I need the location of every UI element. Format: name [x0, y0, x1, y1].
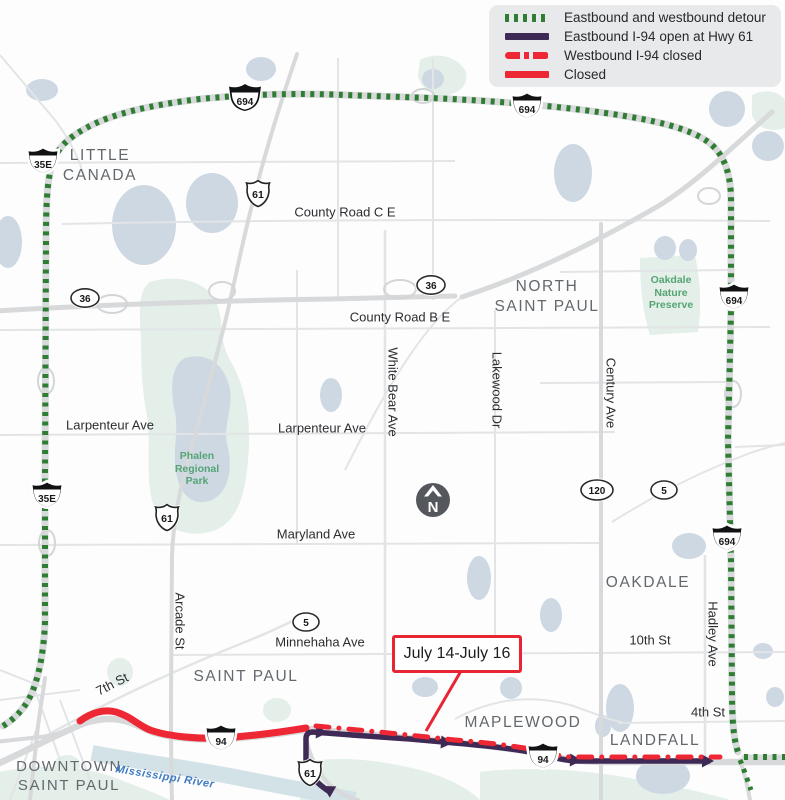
street-label-maryland-ave: Maryland Ave: [277, 527, 356, 542]
shield-i694-east-upper: 694: [716, 281, 752, 311]
lake: [500, 677, 522, 699]
street-label-4th-st: 4th St: [691, 705, 725, 720]
shield-number: 694: [719, 537, 736, 548]
lake: [412, 677, 438, 697]
shield-number: 694: [519, 105, 536, 116]
road: [560, 270, 730, 272]
shield-number: 5: [303, 618, 309, 629]
legend: Eastbound and westbound detour Eastbound…: [489, 5, 781, 87]
street-label-minnehaha-ave: Minnehaha Ave: [275, 635, 364, 650]
park-label-oakdale-preserve: Oakdale Nature Preserve: [649, 274, 693, 312]
shield-number: 61: [252, 189, 264, 201]
shield-number: 35E: [38, 494, 56, 505]
legend-item-eastbound-open: Eastbound I-94 open at Hwy 61: [505, 29, 781, 45]
city-line: DOWNTOWN: [16, 757, 122, 776]
shield-mn5-east: 5: [649, 479, 679, 501]
lake: [554, 144, 592, 202]
city-line: NORTH: [494, 277, 599, 297]
shield-number: 36: [425, 281, 437, 292]
closure-date-callout: July 14-July 16: [392, 635, 522, 673]
lake: [112, 185, 176, 265]
city-line: LANDFALL: [610, 731, 700, 751]
shield-mn5-west: 5: [291, 611, 321, 633]
shield-i694-north: 694: [509, 90, 545, 120]
lake: [654, 236, 676, 260]
city-line: OAKDALE: [606, 573, 690, 593]
legend-item-westbound-closed: Westbound I-94 closed: [505, 48, 781, 64]
lake: [752, 131, 784, 161]
city-label-oakdale: OAKDALE: [606, 573, 690, 593]
lake: [766, 687, 784, 707]
shield-mn120: 120: [579, 478, 615, 502]
legend-swatch-closed: [505, 71, 549, 78]
park-label-phalen: Phalen Regional Park: [175, 450, 219, 488]
road: [612, 443, 785, 522]
shield-i35e-north: 35E: [25, 145, 61, 175]
city-label-downtown-saint-paul: DOWNTOWN SAINT PAUL: [16, 757, 122, 795]
shield-number: 94: [215, 737, 227, 748]
legend-label: Eastbound I-94 open at Hwy 61: [564, 29, 753, 44]
city-label-maplewood: MAPLEWOOD: [465, 713, 582, 733]
shield-mn36-east: 36: [415, 274, 447, 296]
street-label-century-ave: Century Ave: [604, 358, 619, 429]
shield-i35e-south: 35E: [29, 479, 65, 509]
lake: [679, 239, 697, 261]
north-indicator: N: [416, 483, 450, 517]
shield-number: 36: [79, 294, 91, 305]
legend-label: Closed: [564, 67, 606, 82]
city-label-landfall: LANDFALL: [610, 731, 700, 751]
park-line: Regional: [175, 463, 219, 476]
shield-us61-mid: 61: [153, 503, 181, 532]
legend-item-detour: Eastbound and westbound detour: [505, 10, 781, 26]
shield-number: 35E: [34, 160, 52, 171]
shield-number: 61: [161, 513, 173, 525]
lake: [753, 643, 773, 659]
city-line: SAINT PAUL: [16, 776, 122, 795]
street-label-larpenteur-east: Larpenteur Ave: [278, 421, 366, 436]
city-label-saint-paul: SAINT PAUL: [193, 667, 298, 687]
road: [540, 382, 730, 383]
street-label-lakewood-dr: Lakewood Dr: [490, 352, 505, 429]
park-line: Preserve: [649, 299, 693, 312]
legend-swatch-detour: [505, 14, 549, 22]
street-label-county-road-b: County Road B E: [350, 310, 450, 325]
street-label-10th-st: 10th St: [629, 633, 670, 648]
shield-i94-east: 94: [525, 740, 561, 770]
shield-number: 694: [237, 97, 254, 108]
shield-i694-northwest: 694: [227, 82, 263, 112]
shield-number: 94: [537, 755, 549, 766]
city-line: CANADA: [63, 166, 137, 186]
street-label-larpenteur-west: Larpenteur Ave: [66, 418, 154, 433]
road: [618, 721, 785, 723]
shield-mn36-west: 36: [69, 287, 101, 309]
city-line: SAINT PAUL: [193, 667, 298, 687]
city-label-north-saint-paul: NORTH SAINT PAUL: [494, 277, 599, 317]
legend-item-closed: Closed: [505, 67, 781, 83]
park-line: Oakdale: [649, 274, 693, 287]
shield-us61-south: 61: [296, 758, 324, 787]
detour-map: N LITTLE CANADA NORTH SAINT PAUL OAKDALE…: [0, 0, 785, 800]
lake: [672, 533, 706, 559]
road: [0, 543, 600, 545]
street-label-hadley-ave: Hadley Ave: [706, 601, 721, 667]
park-area: [480, 769, 730, 800]
lake: [246, 57, 276, 81]
city-line: LITTLE: [63, 146, 137, 166]
city-line: SAINT PAUL: [494, 297, 599, 317]
street-label-arcade-st: Arcade St: [173, 592, 188, 649]
shield-i694-east-lower: 694: [709, 522, 745, 552]
lake: [0, 216, 22, 268]
lake: [540, 598, 562, 632]
shield-number: 61: [304, 768, 316, 780]
park-line: Park: [175, 475, 219, 488]
city-line: MAPLEWOOD: [465, 713, 582, 733]
lake: [467, 556, 491, 600]
legend-label: Westbound I-94 closed: [564, 48, 702, 63]
shield-number: 120: [589, 486, 606, 497]
park-line: Nature: [649, 287, 693, 300]
street-label-county-road-c: County Road C E: [294, 205, 395, 220]
shield-us61-north: 61: [244, 179, 272, 208]
city-label-little-canada: LITTLE CANADA: [63, 146, 137, 186]
lake: [320, 378, 342, 412]
park-line: Phalen: [175, 450, 219, 463]
lake: [186, 173, 238, 233]
shield-i94-west: 94: [203, 722, 239, 752]
park-area: [263, 698, 291, 722]
lake: [709, 91, 745, 127]
street-label-white-bear-ave: White Bear Ave: [386, 347, 401, 436]
legend-swatch-eastbound-open: [505, 33, 549, 40]
legend-swatch-westbound-closed: [505, 52, 549, 59]
interchange: [698, 188, 720, 204]
shield-number: 5: [661, 486, 667, 497]
legend-label: Eastbound and westbound detour: [564, 10, 766, 25]
shield-number: 694: [726, 296, 743, 307]
north-label: N: [428, 499, 439, 516]
